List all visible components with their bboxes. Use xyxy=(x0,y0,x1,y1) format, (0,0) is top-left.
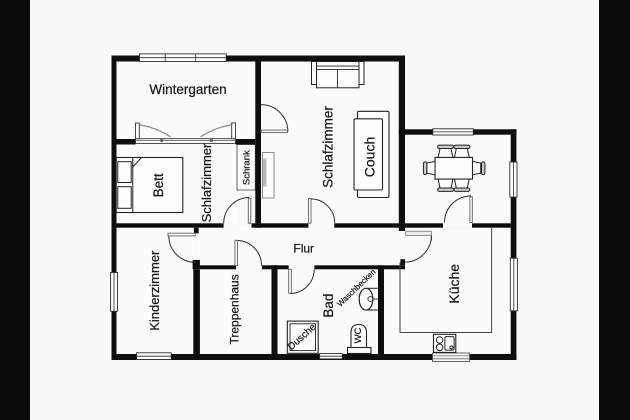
svg-text:Schlafzimmer: Schlafzimmer xyxy=(199,143,214,222)
svg-text:Couch: Couch xyxy=(361,137,377,177)
svg-text:Flur: Flur xyxy=(293,242,314,256)
svg-text:Wintergarten: Wintergarten xyxy=(149,82,226,97)
svg-text:Bett: Bett xyxy=(151,173,166,197)
svg-text:Schrank: Schrank xyxy=(241,150,252,185)
svg-text:WC: WC xyxy=(353,327,364,343)
svg-text:Schlafzimmer: Schlafzimmer xyxy=(321,106,336,188)
svg-text:Treppenhaus: Treppenhaus xyxy=(228,274,242,344)
svg-text:Bad: Bad xyxy=(321,294,336,318)
svg-text:Kinderzimmer: Kinderzimmer xyxy=(147,250,162,331)
svg-text:Küche: Küche xyxy=(446,264,462,304)
